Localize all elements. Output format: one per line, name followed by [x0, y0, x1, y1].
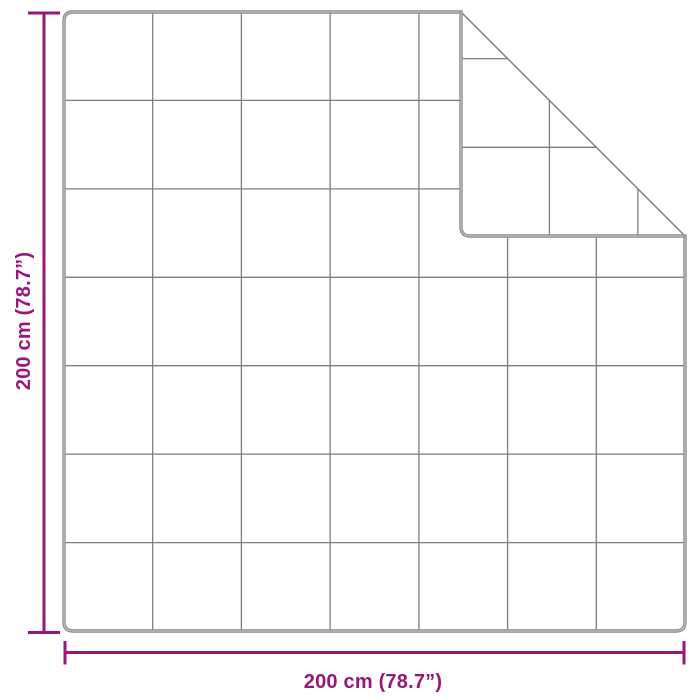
width-dimension-label: 200 cm (78.7”): [304, 671, 442, 693]
height-dimension: 200 cm (78.7”): [13, 13, 60, 633]
fold-line: [461, 12, 685, 236]
quilt-grid: [64, 12, 685, 631]
blanket-outline: [64, 12, 685, 631]
diagram-canvas: 200 cm (78.7”) 200 cm (78.7”): [0, 0, 700, 700]
height-dimension-label: 200 cm (78.7”): [13, 252, 35, 390]
blanket-outline-highlight: [64, 12, 685, 631]
blanket-dimension-diagram: 200 cm (78.7”) 200 cm (78.7”): [0, 0, 700, 700]
width-dimension: 200 cm (78.7”): [65, 641, 684, 693]
folded-corner-grid: [461, 59, 638, 236]
